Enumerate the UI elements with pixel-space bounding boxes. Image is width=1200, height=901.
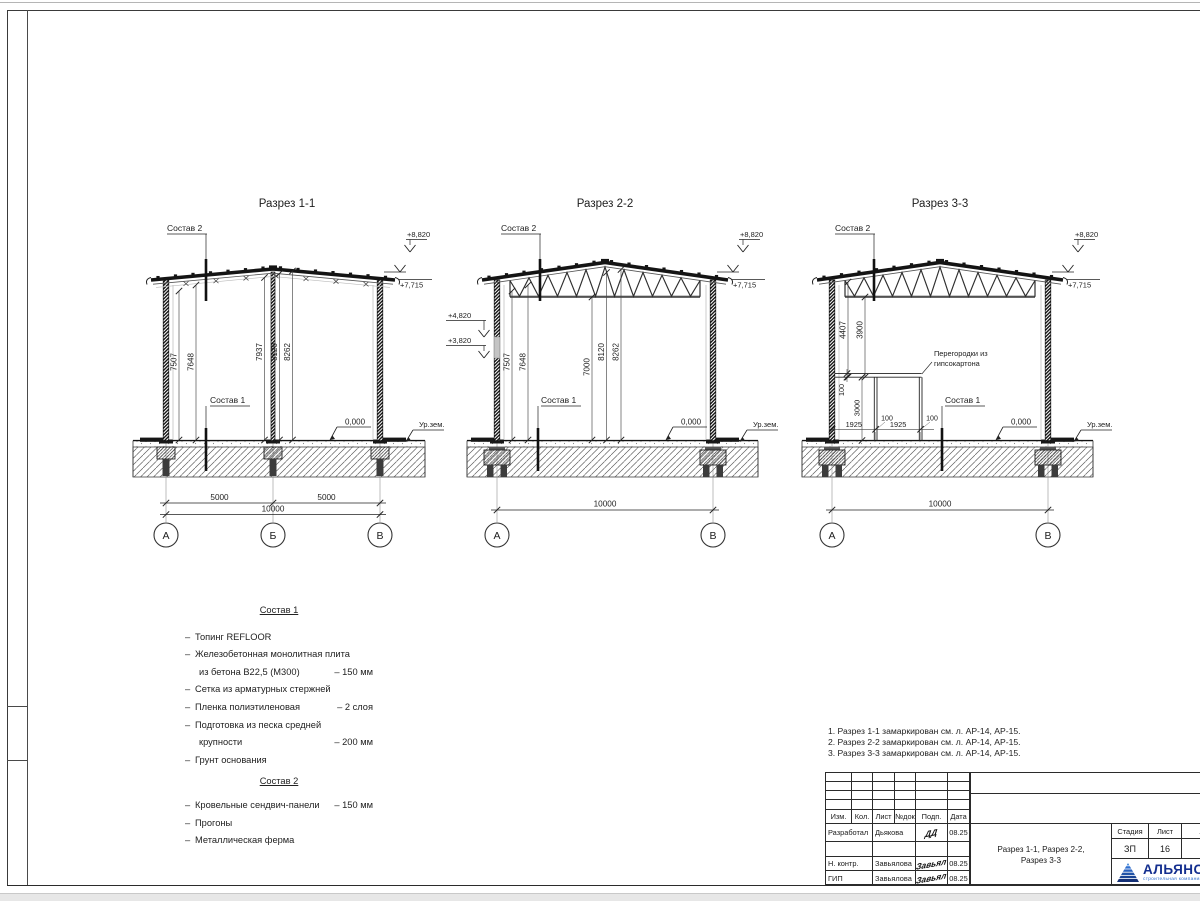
- tb-date: 08.25: [948, 871, 970, 886]
- signature: Завьял: [916, 871, 947, 886]
- tb-date: 08.25: [948, 857, 970, 871]
- tb-col-kol: Кол.: [852, 810, 873, 824]
- tb-sheets-value: 1: [1182, 839, 1200, 859]
- svg-text:0,000: 0,000: [345, 418, 366, 427]
- svg-text:7507: 7507: [503, 353, 512, 371]
- tb-col-podp: Подп.: [916, 810, 948, 824]
- section-1-drawing: Разрез 1-175077648793781208262Состав 2Со…: [133, 198, 444, 547]
- svg-text:В: В: [376, 530, 383, 542]
- svg-text:В: В: [709, 530, 716, 542]
- svg-text:Ур.зем.: Ур.зем.: [419, 420, 444, 429]
- tb-sheet-title: Разрез 1-1, Разрез 2-2, Разрез 3-3: [971, 824, 1112, 886]
- svg-text:3900: 3900: [856, 321, 865, 339]
- list-item: –Прогоны: [185, 815, 373, 833]
- notes-block: 1. Разрез 1-1 замаркирован см. л. АР-14,…: [828, 726, 1128, 759]
- svg-text:7648: 7648: [519, 353, 528, 371]
- tb-sheet-header: Лист: [1149, 824, 1182, 839]
- list-item: –Пленка полиэтиленовая– 2 слоя: [185, 699, 373, 717]
- tb-col-data: Дата: [948, 810, 970, 824]
- svg-text:+8,820: +8,820: [407, 230, 430, 239]
- svg-text:5000: 5000: [317, 493, 336, 502]
- svg-text:7000: 7000: [583, 358, 592, 376]
- svg-text:Разрез 1-1: Разрез 1-1: [259, 198, 315, 210]
- svg-text:Б: Б: [270, 530, 277, 542]
- logo-subtitle: строительная компания: [1143, 878, 1200, 883]
- signature: ДД: [925, 826, 939, 839]
- svg-text:А: А: [493, 530, 500, 542]
- svg-text:1925: 1925: [846, 420, 862, 429]
- svg-text:0,000: 0,000: [1011, 418, 1032, 427]
- tb-role: ГИП: [826, 871, 873, 886]
- tb-stage-grid: Стадия Лист Листов ЗП 16 1: [1112, 824, 1200, 859]
- svg-text:100: 100: [837, 384, 846, 396]
- svg-text:Состав 2: Состав 2: [167, 223, 203, 233]
- title-block-revision-grid: Изм. Кол. Лист №док Подп. Дата: [826, 773, 970, 824]
- tb-stage-header: Стадия: [1112, 824, 1149, 839]
- svg-text:8120: 8120: [597, 343, 606, 361]
- svg-text:Перегородки из: Перегородки из: [934, 349, 988, 358]
- svg-text:+7,715: +7,715: [1068, 281, 1091, 290]
- svg-text:10000: 10000: [262, 505, 285, 514]
- company-logo: АЛЬЯНС строительная компания: [1112, 859, 1200, 886]
- section-3-drawing: Разрез 3-344073900Состав 2Состав 10,000У…: [802, 198, 1112, 547]
- sections-drawing: Разрез 1-175077648793781208262Состав 2Со…: [0, 0, 1200, 570]
- list-item: –Кровельные сендвич-панели– 150 мм: [185, 797, 373, 815]
- svg-text:5000: 5000: [210, 493, 229, 502]
- svg-text:8262: 8262: [612, 343, 621, 361]
- svg-text:10000: 10000: [929, 500, 952, 509]
- svg-text:8262: 8262: [283, 343, 292, 361]
- tb-role: Н. контр.: [826, 857, 873, 871]
- sostav2-heading: Состав 2: [185, 773, 373, 791]
- svg-text:Состав 1: Состав 1: [210, 395, 246, 405]
- svg-text:+7,715: +7,715: [400, 281, 423, 290]
- list-item: –Грунт основания: [185, 752, 373, 770]
- drawing-sheet-page: { "sections": [ { "title": "Разрез 1-1",…: [0, 0, 1200, 900]
- svg-text:4407: 4407: [839, 321, 848, 339]
- title-block-signature-grid: Разработал Дьякова ДД 08.25 Н. контр. За…: [826, 824, 970, 886]
- sostav1-heading: Состав 1: [185, 602, 373, 620]
- tb-date: 08.25: [948, 824, 970, 842]
- frame-tick-upper: [7, 706, 27, 707]
- logo-name: АЛЬЯНС: [1143, 863, 1200, 877]
- tb-name: Завьялова: [873, 871, 916, 886]
- svg-text:100: 100: [881, 416, 893, 423]
- tb-col-izm: Изм.: [826, 810, 852, 824]
- note-line: 3. Разрез 3-3 замаркирован см. л. АР-14,…: [828, 748, 1128, 759]
- title-block-right: Разрез 1-1, Разрез 2-2, Разрез 3-3 Стади…: [970, 773, 1200, 886]
- svg-text:+8,820: +8,820: [740, 230, 763, 239]
- composition-lists: Состав 1 –Топинг REFLOOR –Железобетонная…: [185, 602, 373, 850]
- svg-text:Ур.зем.: Ур.зем.: [753, 420, 778, 429]
- list-item: –Сетка из арматурных стержней: [185, 681, 373, 699]
- tb-col-doc: №док: [895, 810, 916, 824]
- svg-text:В: В: [1044, 530, 1051, 542]
- note-line: 2. Разрез 2-2 замаркирован см. л. АР-14,…: [828, 737, 1128, 748]
- frame-tick-lower: [7, 760, 27, 761]
- tb-stage-value: ЗП: [1112, 839, 1149, 859]
- tb-name: Завьялова: [873, 857, 916, 871]
- list-item: из бетона В22,5 (М300)– 150 мм: [185, 664, 373, 682]
- tb-sheet-value: 16: [1149, 839, 1182, 859]
- svg-text:А: А: [162, 530, 169, 542]
- svg-text:Состав 1: Состав 1: [945, 395, 981, 405]
- title-block: Изм. Кол. Лист №док Подп. Дата Разработа…: [825, 772, 1200, 885]
- section-2-drawing: Разрез 2-275077648700081208262Состав 2Со…: [446, 198, 778, 547]
- svg-text:Состав 1: Состав 1: [541, 395, 577, 405]
- svg-text:А: А: [828, 530, 835, 542]
- svg-text:7937: 7937: [255, 343, 264, 361]
- list-item: крупности– 200 мм: [185, 734, 373, 752]
- svg-text:Состав 2: Состав 2: [835, 223, 871, 233]
- svg-text:8120: 8120: [270, 343, 279, 361]
- note-line: 1. Разрез 1-1 замаркирован см. л. АР-14,…: [828, 726, 1128, 737]
- svg-text:7648: 7648: [187, 353, 196, 371]
- svg-text:гипсокартона: гипсокартона: [934, 359, 981, 368]
- list-item: –Металлическая ферма: [185, 832, 373, 850]
- list-item: –Подготовка из песка средней: [185, 717, 373, 735]
- svg-text:+7,715: +7,715: [733, 281, 756, 290]
- tb-role: Разработал: [826, 824, 873, 842]
- tb-name: Дьякова: [873, 824, 916, 842]
- svg-text:100: 100: [926, 416, 938, 423]
- svg-text:0,000: 0,000: [681, 418, 702, 427]
- svg-text:Разрез 2-2: Разрез 2-2: [577, 198, 633, 210]
- alliance-logo-icon: [1117, 863, 1139, 882]
- tb-document-code-cell: [971, 773, 1200, 794]
- svg-text:10000: 10000: [594, 500, 617, 509]
- list-item: –Топинг REFLOOR: [185, 629, 373, 647]
- tb-sheets-header: Листов: [1182, 824, 1200, 839]
- svg-text:+4,820: +4,820: [448, 311, 471, 320]
- svg-text:+8,820: +8,820: [1075, 230, 1098, 239]
- svg-text:Разрез 3-3: Разрез 3-3: [912, 198, 968, 210]
- signature: Завьял: [916, 857, 947, 871]
- list-item: –Железобетонная монолитная плита: [185, 646, 373, 664]
- svg-text:Ур.зем.: Ур.зем.: [1087, 420, 1112, 429]
- svg-text:Состав 2: Состав 2: [501, 223, 537, 233]
- svg-text:7507: 7507: [170, 353, 179, 371]
- tb-col-list: Лист: [873, 810, 895, 824]
- svg-text:3000: 3000: [853, 400, 862, 416]
- svg-text:+3,820: +3,820: [448, 336, 471, 345]
